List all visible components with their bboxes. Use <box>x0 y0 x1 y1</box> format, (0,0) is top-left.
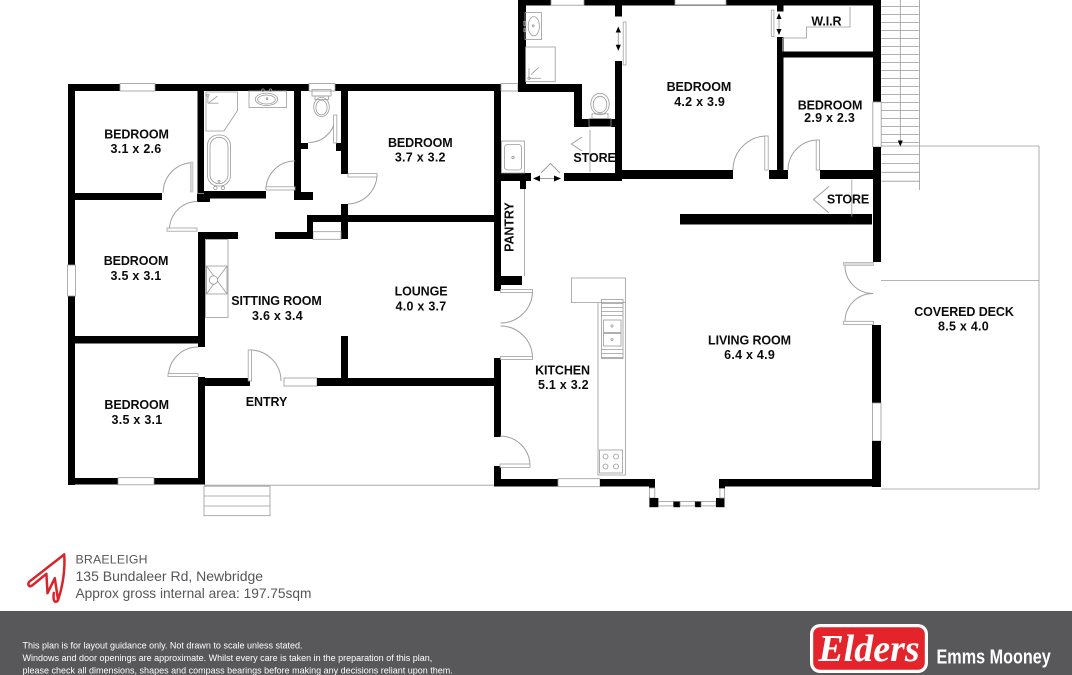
svg-text:BEDROOM: BEDROOM <box>104 398 169 412</box>
svg-text:LOUNGE: LOUNGE <box>395 285 448 299</box>
svg-text:STORE: STORE <box>573 151 615 165</box>
svg-text:3.5 x 3.1: 3.5 x 3.1 <box>111 269 162 283</box>
svg-text:BEDROOM: BEDROOM <box>667 80 732 94</box>
svg-text:4.2 x 3.9: 4.2 x 3.9 <box>674 95 725 109</box>
svg-text:W.I.R: W.I.R <box>811 15 841 29</box>
svg-text:BEDROOM: BEDROOM <box>104 127 169 141</box>
svg-text:PANTRY: PANTRY <box>503 202 517 252</box>
svg-text:6.4 x 4.9: 6.4 x 4.9 <box>724 348 775 362</box>
svg-text:3.6 x 3.4: 3.6 x 3.4 <box>252 309 303 323</box>
svg-text:STORE: STORE <box>827 193 869 207</box>
svg-text:3.7 x 3.2: 3.7 x 3.2 <box>395 151 446 165</box>
svg-text:8.5 x 4.0: 8.5 x 4.0 <box>938 319 989 333</box>
svg-text:2.9 x 2.3: 2.9 x 2.3 <box>804 111 855 125</box>
svg-text:LIVING ROOM: LIVING ROOM <box>708 333 791 347</box>
svg-text:COVERED DECK: COVERED DECK <box>914 305 1014 319</box>
svg-text:SITTING ROOM: SITTING ROOM <box>231 294 321 308</box>
svg-text:Emms Mooney: Emms Mooney <box>937 646 1052 668</box>
svg-text:BEDROOM: BEDROOM <box>388 136 453 150</box>
svg-text:BRAELEIGH: BRAELEIGH <box>76 553 148 567</box>
svg-text:Approx gross internal area: 19: Approx gross internal area: 197.75sqm <box>76 586 312 601</box>
svg-text:3.1 x 2.6: 3.1 x 2.6 <box>111 142 162 156</box>
svg-text:Elders: Elders <box>817 628 919 670</box>
svg-text:Windows and door openings are: Windows and door openings are approximat… <box>23 653 433 663</box>
svg-text:135 Bundaleer Rd, Newbridge: 135 Bundaleer Rd, Newbridge <box>76 568 264 584</box>
svg-text:ENTRY: ENTRY <box>246 395 288 409</box>
svg-text:BEDROOM: BEDROOM <box>104 254 169 268</box>
svg-text:KITCHEN: KITCHEN <box>535 364 590 378</box>
svg-text:4.0 x 3.7: 4.0 x 3.7 <box>396 299 447 313</box>
svg-text:please check all dimensions, s: please check all dimensions, shapes and … <box>23 665 453 675</box>
svg-text:5.1 x 3.2: 5.1 x 3.2 <box>538 378 589 392</box>
svg-text:This plan is for layout guidan: This plan is for layout guidance only. N… <box>23 641 303 651</box>
svg-text:3.5 x 3.1: 3.5 x 3.1 <box>112 413 163 427</box>
